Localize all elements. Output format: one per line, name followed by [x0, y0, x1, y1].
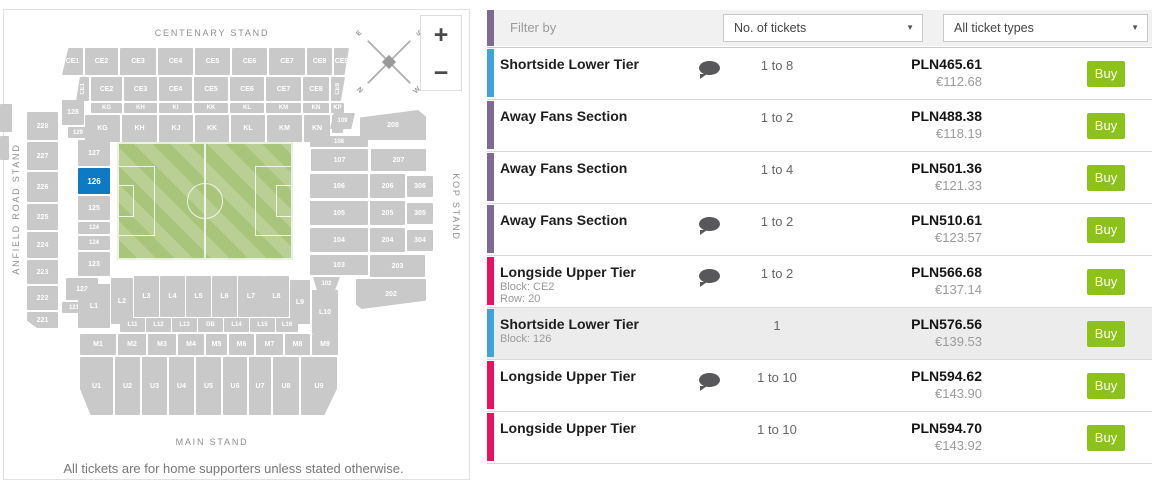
map-block-KH[interactable]: KH [122, 115, 157, 142]
ticket-name: Away Fans Section [500, 212, 627, 228]
map-block-U3[interactable]: U3 [142, 357, 167, 415]
map-block-U7[interactable]: U7 [249, 357, 271, 415]
map-block-CE5[interactable]: CE5 [195, 48, 230, 75]
ticket-quantity: 1 to 2 [739, 214, 815, 229]
map-block-KP[interactable]: KP [331, 103, 344, 113]
ticket-category-bar [487, 153, 494, 201]
map-block-CE5[interactable]: CE5 [194, 77, 228, 101]
filter-by-label: Filter by [510, 20, 556, 35]
ticket-category-bar [487, 413, 494, 461]
map-block-123[interactable]: 123 [78, 252, 110, 276]
map-block-M2[interactable]: M2 [118, 334, 146, 355]
ticket-row[interactable]: Away Fans Section 1 to 2 PLN510.61 €123.… [487, 204, 1152, 256]
buy-button[interactable]: Buy [1087, 425, 1125, 451]
price-eur: €112.68 [911, 74, 982, 89]
map-block-106[interactable]: 106 [310, 174, 368, 198]
map-block-CE7[interactable]: CE7 [266, 77, 301, 101]
ticket-category-bar [487, 49, 494, 97]
ticket-name: Away Fans Section [500, 160, 627, 176]
map-block-103[interactable]: 103 [310, 255, 368, 275]
map-block-M5[interactable]: M5 [206, 334, 227, 355]
map-block-KG[interactable]: KG [85, 115, 120, 142]
buy-button[interactable]: Buy [1087, 321, 1125, 347]
map-block-U6[interactable]: U6 [223, 357, 247, 415]
ticket-detail-block: Block: 126 [500, 333, 551, 345]
map-block-222[interactable]: 222 [27, 286, 58, 310]
ticket-name: Shortside Lower Tier [500, 56, 639, 72]
map-footer-note: All tickets are for home supporters unle… [0, 461, 467, 476]
note-bubble-icon[interactable] [699, 61, 720, 75]
pitch-goal-box-right [276, 185, 291, 217]
ticket-row[interactable]: Longside Upper Tier 1 to 10 PLN594.62 €1… [487, 360, 1152, 412]
ticket-category-bar [487, 101, 494, 149]
ticket-name: Longside Upper Tier [500, 420, 636, 436]
map-block-M8[interactable]: M8 [285, 334, 310, 355]
ticket-types-dropdown[interactable]: All ticket types ▼ [943, 14, 1148, 42]
buy-button[interactable]: Buy [1087, 269, 1125, 295]
buy-button[interactable]: Buy [1087, 217, 1125, 243]
map-block-L10[interactable]: L10 [312, 290, 338, 334]
map-block-KL[interactable]: KL [231, 115, 265, 142]
ticket-quantity: 1 to 4 [739, 162, 815, 177]
map-block-226[interactable]: 226 [27, 172, 58, 202]
ticket-row[interactable]: Away Fans Section 1 to 2 PLN488.38 €118.… [487, 100, 1152, 152]
price-eur: €143.90 [911, 386, 982, 401]
map-block-129[interactable]: 129 [68, 127, 88, 138]
map-block-edge[interactable] [0, 136, 9, 160]
chevron-down-icon: ▼ [1131, 15, 1139, 41]
ticket-list: Shortside Lower Tier 1 to 8 PLN465.61 €1… [487, 47, 1152, 464]
price-pln: PLN566.68 [911, 264, 982, 280]
price-eur: €118.19 [911, 126, 982, 141]
map-block-L7[interactable]: L7 [238, 276, 264, 317]
num-tickets-dropdown[interactable]: No. of tickets ▼ [723, 14, 923, 42]
stand-label-anfield-road: ANFIELD ROAD STAND [11, 143, 21, 274]
map-block-U8[interactable]: U8 [273, 357, 299, 415]
map-block-227[interactable]: 227 [27, 142, 58, 170]
map-block-L12[interactable]: L12 [146, 318, 171, 332]
map-block-L11[interactable]: L11 [120, 318, 145, 332]
stadium-map: CENTENARY STAND ANFIELD ROAD STAND KOP S… [0, 0, 480, 480]
map-block-CE7[interactable]: CE7 [269, 48, 305, 75]
map-block-L5[interactable]: L5 [186, 276, 211, 317]
map-block-DB[interactable]: DB [198, 318, 223, 332]
map-block-CE6[interactable]: CE6 [232, 48, 267, 75]
map-block-CE3[interactable]: CE3 [124, 77, 157, 101]
stand-label-main: MAIN STAND [0, 437, 424, 447]
ticket-name: Shortside Lower Tier [500, 316, 639, 332]
map-block-M3[interactable]: M3 [148, 334, 176, 355]
chevron-down-icon: ▼ [906, 15, 914, 41]
map-block-KG[interactable]: KG [91, 103, 122, 113]
ticket-prices: PLN465.61 €112.68 [911, 56, 982, 89]
filter-accent-bar [487, 10, 494, 46]
ticket-row[interactable]: Shortside Lower Tier Block: 126 1 PLN576… [487, 308, 1152, 360]
map-block-108[interactable]: 108 [310, 136, 368, 147]
map-block-223[interactable]: 223 [27, 260, 58, 284]
ticket-row[interactable]: Shortside Lower Tier 1 to 8 PLN465.61 €1… [487, 48, 1152, 100]
price-eur: €121.33 [911, 178, 982, 193]
map-block-CE2[interactable]: CE2 [91, 77, 122, 101]
note-bubble-icon[interactable] [699, 373, 720, 387]
map-block-127[interactable]: 127 [78, 140, 110, 166]
price-pln: PLN594.62 [911, 368, 982, 384]
ticket-row[interactable]: Away Fans Section 1 to 4 PLN501.36 €121.… [487, 152, 1152, 204]
map-block-L4[interactable]: L4 [160, 276, 185, 317]
ticket-category-bar [487, 257, 494, 305]
filter-bar: Filter by No. of tickets ▼ All ticket ty… [487, 10, 1152, 46]
ticket-prices: PLN501.36 €121.33 [911, 160, 982, 193]
map-block-M4[interactable]: M4 [178, 334, 204, 355]
map-block-206[interactable]: 206 [370, 174, 405, 198]
price-eur: €143.92 [911, 438, 982, 453]
map-block-KH[interactable]: KH [124, 103, 157, 113]
map-block-M1[interactable]: M1 [80, 334, 116, 355]
map-block-207[interactable]: 207 [371, 149, 426, 171]
map-block-203[interactable]: 203 [370, 255, 425, 277]
map-block-CE8[interactable]: CE8 [303, 77, 329, 101]
ticket-category-bar [487, 205, 494, 253]
map-block-CE4[interactable]: CE4 [158, 48, 193, 75]
buy-button[interactable]: Buy [1087, 61, 1125, 87]
ticket-quantity: 1 to 2 [739, 110, 815, 125]
map-block-KK[interactable]: KK [195, 115, 229, 142]
map-block-L8[interactable]: L8 [264, 276, 289, 317]
map-block-M9[interactable]: M9 [312, 334, 338, 355]
map-block-305[interactable]: 305 [407, 203, 433, 224]
map-block-304[interactable]: 304 [407, 230, 433, 251]
map-block-M7[interactable]: M7 [256, 334, 283, 355]
pitch-center-circle [187, 183, 223, 219]
ticket-row[interactable]: Longside Upper Tier 1 to 10 PLN594.70 €1… [487, 412, 1152, 464]
map-block-CE8[interactable]: CE8 [307, 48, 332, 75]
stand-label-kop: KOP STAND [451, 173, 461, 240]
pitch-goal-box-left [119, 185, 134, 217]
map-block-204[interactable]: 204 [370, 228, 405, 252]
map-block-KM[interactable]: KM [266, 103, 301, 113]
map-block-KL[interactable]: KL [230, 103, 264, 113]
map-block-U2[interactable]: U2 [115, 357, 140, 415]
price-pln: PLN488.38 [911, 108, 982, 124]
map-block-CE6[interactable]: CE6 [230, 77, 264, 101]
map-block-KJ[interactable]: KJ [159, 115, 193, 142]
map-block-KN[interactable]: KN [303, 103, 329, 113]
ticket-name: Longside Upper Tier [500, 264, 636, 280]
map-block-KI[interactable]: KI [159, 103, 192, 113]
price-pln: PLN465.61 [911, 56, 982, 72]
map-block-L14[interactable]: L14 [224, 318, 249, 332]
map-block-L6[interactable]: L6 [212, 276, 237, 317]
ticket-row[interactable]: Longside Upper Tier Block: CE2 Row: 20 1… [487, 256, 1152, 308]
map-block-edge[interactable] [0, 104, 12, 132]
ticket-prices: PLN594.70 €143.92 [911, 420, 982, 453]
price-eur: €123.57 [911, 230, 982, 245]
note-bubble-icon[interactable] [699, 217, 720, 231]
map-block-205[interactable]: 205 [370, 201, 405, 225]
ticket-quantity: 1 to 10 [739, 422, 815, 437]
map-block-306[interactable]: 306 [407, 176, 433, 197]
map-block-CE3[interactable]: CE3 [120, 48, 156, 75]
ticket-prices: PLN510.61 €123.57 [911, 212, 982, 245]
map-block-107[interactable]: 107 [311, 149, 368, 171]
map-block-126[interactable]: 126 [78, 168, 110, 194]
compass-letter-e: E [355, 29, 363, 37]
ticket-detail-block: Block: CE2 [500, 281, 554, 293]
map-block-U4[interactable]: U4 [169, 357, 194, 415]
map-block-125[interactable]: 125 [78, 196, 110, 220]
football-pitch [117, 142, 293, 260]
map-block-225[interactable]: 225 [27, 204, 58, 230]
ticket-category-bar [487, 361, 494, 409]
ticket-quantity: 1 to 10 [739, 370, 815, 385]
map-block-228[interactable]: 228 [27, 112, 58, 140]
map-block-224[interactable]: 224 [27, 232, 58, 258]
map-block-109[interactable]: 109 [330, 113, 355, 129]
ticket-quantity: 1 [739, 318, 815, 333]
ticket-prices: PLN566.68 €137.14 [911, 264, 982, 297]
compass-letter-n: N [355, 86, 364, 95]
ticket-quantity: 1 to 8 [739, 58, 815, 73]
ticket-prices: PLN594.62 €143.90 [911, 368, 982, 401]
map-block-105[interactable]: 105 [310, 201, 368, 225]
ticket-detail-row: Row: 20 [500, 293, 540, 305]
map-block-CE2[interactable]: CE2 [85, 48, 118, 75]
map-zoom-control: + − [420, 15, 462, 91]
ticket-prices: PLN488.38 €118.19 [911, 108, 982, 141]
price-pln: PLN594.70 [911, 420, 982, 436]
map-block-KM[interactable]: KM [267, 115, 302, 142]
price-pln: PLN576.56 [911, 316, 982, 332]
price-eur: €139.53 [911, 334, 982, 349]
map-block-M6[interactable]: M6 [229, 334, 254, 355]
map-block-L16[interactable]: L16 [276, 318, 298, 332]
price-pln: PLN510.61 [911, 212, 982, 228]
ticket-prices: PLN576.56 €139.53 [911, 316, 982, 349]
price-eur: €137.14 [911, 282, 982, 297]
zoom-in-button[interactable]: + [421, 16, 461, 54]
buy-button[interactable]: Buy [1087, 373, 1125, 399]
map-block-104[interactable]: 104 [310, 228, 368, 252]
note-bubble-icon[interactable] [699, 269, 720, 283]
ticket-types-dropdown-value: All ticket types [954, 21, 1034, 35]
map-block-L15[interactable]: L15 [250, 318, 275, 332]
ticket-quantity: 1 to 2 [739, 266, 815, 281]
map-block-KK[interactable]: KK [194, 103, 228, 113]
map-block-CE4[interactable]: CE4 [159, 77, 192, 101]
map-block-124[interactable]: 124 [78, 236, 110, 250]
ticket-category-bar [487, 309, 494, 357]
buy-button[interactable]: Buy [1087, 113, 1125, 139]
map-block-U5[interactable]: U5 [196, 357, 221, 415]
map-block-128[interactable]: 128 [62, 100, 84, 125]
buy-button[interactable]: Buy [1087, 165, 1125, 191]
map-block-124[interactable]: 124 [78, 222, 110, 234]
ticket-name: Away Fans Section [500, 108, 627, 124]
ticket-name: Longside Upper Tier [500, 368, 636, 384]
zoom-out-button[interactable]: − [421, 54, 461, 92]
map-block-L3[interactable]: L3 [134, 276, 159, 317]
map-block-L13[interactable]: L13 [172, 318, 197, 332]
price-pln: PLN501.36 [911, 160, 982, 176]
num-tickets-dropdown-value: No. of tickets [734, 21, 806, 35]
compass-icon: E S N W [357, 30, 421, 94]
